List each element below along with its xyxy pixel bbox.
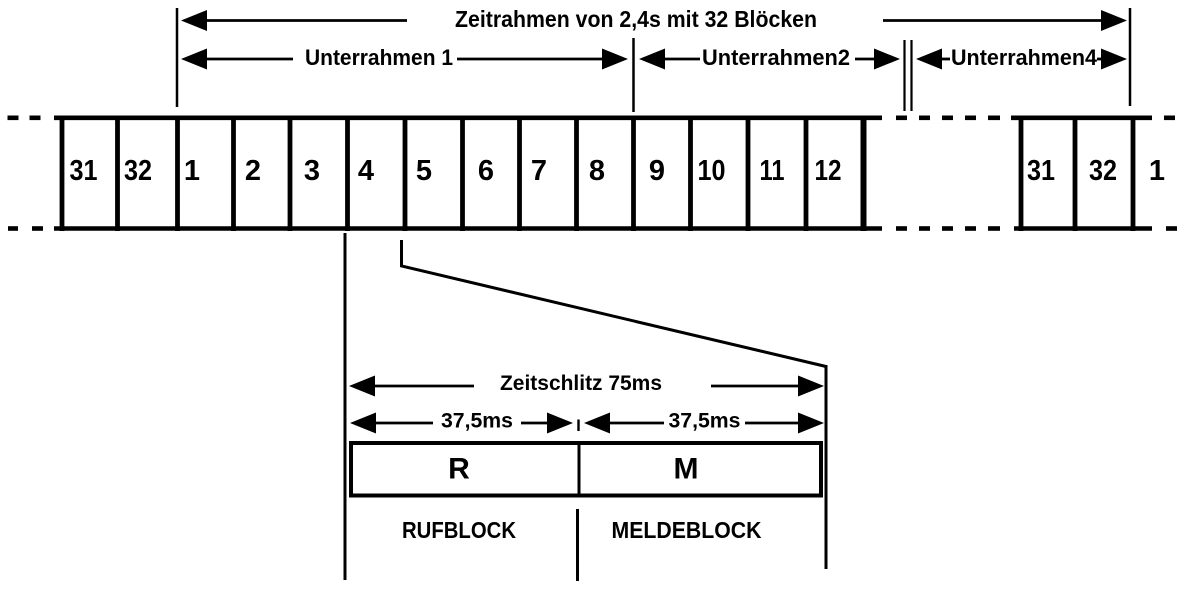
- svg-text:2: 2: [245, 155, 261, 187]
- svg-text:3: 3: [304, 155, 320, 187]
- svg-text:Unterrahmen4: Unterrahmen4: [951, 45, 1098, 70]
- svg-text:5: 5: [416, 155, 432, 187]
- svg-text:Unterrahmen 1: Unterrahmen 1: [305, 45, 453, 70]
- svg-text:12: 12: [815, 155, 842, 187]
- svg-text:37,5ms: 37,5ms: [441, 410, 513, 433]
- svg-text:11: 11: [760, 155, 785, 187]
- svg-text:4: 4: [358, 155, 374, 187]
- svg-text:1: 1: [1149, 155, 1165, 187]
- svg-text:8: 8: [589, 155, 605, 187]
- svg-text:Zeitrahmen von 2,4s mit 32 Blö: Zeitrahmen von 2,4s mit 32 Blöcken: [455, 6, 817, 32]
- svg-text:10: 10: [698, 155, 726, 187]
- svg-text:6: 6: [478, 155, 494, 187]
- svg-text:Unterrahmen2: Unterrahmen2: [702, 45, 850, 70]
- svg-text:7: 7: [531, 155, 547, 187]
- svg-text:MELDEBLOCK: MELDEBLOCK: [612, 517, 762, 543]
- svg-text:1: 1: [184, 155, 200, 187]
- svg-text:9: 9: [649, 155, 665, 187]
- svg-text:31: 31: [70, 155, 98, 187]
- svg-text:RUFBLOCK: RUFBLOCK: [402, 517, 516, 543]
- svg-text:31: 31: [1027, 155, 1055, 187]
- svg-text:37,5ms: 37,5ms: [669, 410, 741, 433]
- svg-text:M: M: [674, 453, 699, 486]
- svg-text:Zeitschlitz 75ms: Zeitschlitz 75ms: [500, 372, 662, 395]
- svg-text:32: 32: [124, 155, 152, 187]
- svg-text:32: 32: [1089, 155, 1117, 187]
- svg-text:R: R: [448, 453, 470, 486]
